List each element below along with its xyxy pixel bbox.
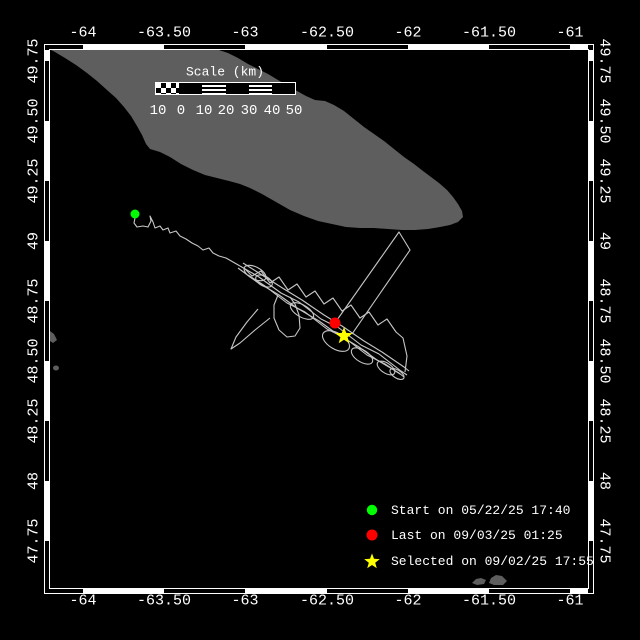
frame-block-left: [45, 121, 50, 181]
selected-marker[interactable]: [335, 327, 352, 343]
legend-item-last: Last on 09/03/25 01:25: [363, 525, 563, 545]
y-tick-label-left: 47.75: [27, 518, 42, 563]
frame-block-right: [589, 121, 594, 181]
scale-bar-segment: [272, 83, 295, 94]
scale-bar-segment: [202, 83, 225, 94]
frame-block-top: [489, 45, 570, 50]
y-tick-label-left: 48: [27, 472, 42, 490]
scale-bar: [155, 82, 296, 95]
scale-bar-segment: [249, 83, 272, 94]
y-tick-label-right: 48.25: [597, 398, 612, 443]
x-tick-label-top: -61: [556, 26, 583, 41]
small-island: [472, 578, 486, 585]
frame-block-left: [45, 61, 50, 121]
frame-block-right: [589, 61, 594, 121]
legend-label-last: Last on 09/03/25 01:25: [391, 528, 563, 543]
frame-block-right: [589, 361, 594, 421]
scale-bar-segment: [226, 83, 249, 94]
frame-block-left: [45, 241, 50, 301]
scale-bar-segment: [156, 83, 179, 94]
y-tick-label-left: 49.75: [27, 38, 42, 83]
x-tick-label-top: -64: [69, 26, 96, 41]
scale-bar-number: 20: [218, 103, 235, 119]
frame-block-top: [570, 45, 588, 50]
scale-bar-number: 10: [196, 103, 213, 119]
y-tick-label-left: 49: [27, 232, 42, 250]
start-dot-icon: [363, 501, 381, 519]
frame-block-right: [589, 241, 594, 301]
last-dot-icon: [363, 526, 381, 544]
small-island: [489, 575, 507, 585]
scale-bar-number: 30: [241, 103, 258, 119]
frame-block-top: [50, 45, 83, 50]
legend-item-start: Start on 05/22/25 17:40: [363, 500, 570, 520]
frame-block-top: [245, 45, 327, 50]
frame-block-right: [589, 421, 594, 481]
small-island: [53, 366, 59, 371]
y-tick-label-right: 49.50: [597, 98, 612, 143]
selected-star-icon: [363, 552, 381, 570]
scale-bar-number: 40: [264, 103, 281, 119]
x-tick-label-top: -63: [231, 26, 258, 41]
last-marker[interactable]: [330, 318, 341, 329]
y-tick-label-right: 47.75: [597, 518, 612, 563]
track-path: [134, 216, 240, 266]
x-tick-label-bottom: -63.50: [137, 594, 191, 609]
track-loop: [349, 345, 376, 368]
frame-block-right: [589, 481, 594, 541]
y-tick-label-right: 48.50: [597, 338, 612, 383]
scale-bar-segment: [179, 83, 202, 94]
y-tick-label-right: 49: [597, 232, 612, 250]
start-marker[interactable]: [131, 210, 140, 219]
y-tick-label-right: 48.75: [597, 278, 612, 323]
x-tick-label-bottom: -64: [69, 594, 96, 609]
track-path: [240, 266, 407, 375]
x-tick-label-top: -62.50: [300, 26, 354, 41]
scale-bar-title: Scale (km): [186, 65, 264, 80]
y-tick-label-right: 48: [597, 472, 612, 490]
x-tick-label-bottom: -61: [556, 594, 583, 609]
small-island: [50, 331, 57, 343]
y-tick-label-left: 48.25: [27, 398, 42, 443]
legend-label-start: Start on 05/22/25 17:40: [391, 503, 570, 518]
legend-label-selected: Selected on 09/02/25 17:55: [391, 554, 594, 569]
x-tick-label-top: -62: [394, 26, 421, 41]
frame-block-top: [408, 45, 489, 50]
x-tick-label-bottom: -62: [394, 594, 421, 609]
track-path: [243, 263, 409, 371]
y-tick-label-right: 49.75: [597, 38, 612, 83]
scale-bar-number: 0: [177, 103, 185, 119]
frame-block-top: [327, 45, 408, 50]
y-tick-label-left: 49.25: [27, 158, 42, 203]
x-tick-label-bottom: -63: [231, 594, 258, 609]
frame-block-left: [45, 361, 50, 421]
frame-block-top: [164, 45, 245, 50]
frame-block-left: [45, 50, 50, 61]
x-tick-label-bottom: -62.50: [300, 594, 354, 609]
scale-bar-number: 50: [286, 103, 303, 119]
frame-block-left: [45, 421, 50, 481]
y-tick-label-right: 49.25: [597, 158, 612, 203]
y-tick-label-left: 48.50: [27, 338, 42, 383]
y-tick-label-left: 48.75: [27, 278, 42, 323]
frame-block-right: [589, 301, 594, 361]
x-tick-label-top: -63.50: [137, 26, 191, 41]
frame-block-right: [589, 181, 594, 241]
y-tick-label-left: 49.50: [27, 98, 42, 143]
frame-block-left: [45, 481, 50, 541]
tracking-map-screen: -64-64-63.50-63.50-63-63-62.50-62.50-62-…: [0, 0, 640, 640]
legend-item-selected: Selected on 09/02/25 17:55: [363, 551, 594, 571]
frame-block-top: [83, 45, 164, 50]
frame-block-left: [45, 301, 50, 361]
x-tick-label-top: -61.50: [462, 26, 516, 41]
frame-block-right: [589, 50, 594, 61]
x-tick-label-bottom: -61.50: [462, 594, 516, 609]
track-path: [231, 309, 270, 349]
frame-block-left: [45, 181, 50, 241]
scale-bar-number: 10: [150, 103, 167, 119]
frame-block-left: [45, 541, 50, 588]
